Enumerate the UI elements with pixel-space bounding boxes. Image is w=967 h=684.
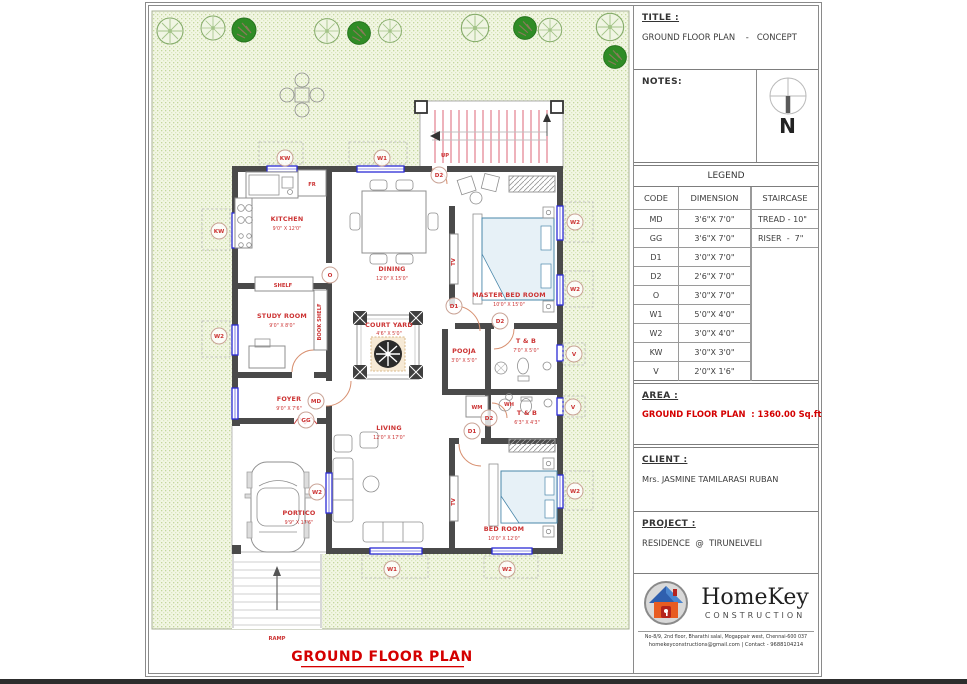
- title-value: GROUND FLOOR PLAN - CONCEPT: [642, 32, 810, 42]
- marker-d2: D2: [496, 319, 505, 325]
- legend-cell: MD: [634, 210, 679, 229]
- logo-name: HomeKey: [701, 586, 809, 609]
- plan-caption: GROUND FLOOR PLAN: [291, 649, 472, 665]
- room-dim: 9'0" X 8'0": [269, 323, 295, 329]
- notes-section: NOTES: N: [634, 70, 818, 163]
- legend-cell: 3'0"X 7'0": [679, 248, 751, 267]
- client-label: CLIENT :: [642, 455, 810, 465]
- stair-up-label: UP: [441, 153, 449, 159]
- marker-w2: W2: [570, 489, 580, 495]
- logo-tagline: CONSTRUCTION: [705, 611, 805, 620]
- legend-cell: [751, 248, 818, 267]
- legend-cell: [751, 267, 818, 286]
- client-section: CLIENT : Mrs. JASMINE TAMILARASI RUBAN: [634, 447, 818, 512]
- marker-d1: D1: [468, 429, 477, 435]
- marker-o: O: [328, 273, 333, 279]
- marker-w2: W2: [312, 490, 322, 496]
- logo-address: No-8/9, 2nd floor, Bharathi salai, Mogap…: [638, 631, 814, 650]
- legend-cell: [751, 305, 818, 324]
- legend-col-dimension: DIMENSION: [679, 187, 751, 210]
- drawing-sheet-page: KITCHEN 9'0" X 12'0" DINING 12'0" X 15'0…: [0, 0, 967, 684]
- legend-cell: W2: [634, 324, 679, 343]
- north-label: N: [779, 116, 796, 136]
- marker-w1: W1: [387, 567, 397, 573]
- marker-v: V: [571, 405, 576, 411]
- room-dim: 3'0" X 5'0": [451, 358, 477, 364]
- sheet-border: KITCHEN 9'0" X 12'0" DINING 12'0" X 15'0…: [145, 2, 822, 677]
- marker-w2: W2: [502, 567, 512, 573]
- ramp-label: RAMP: [269, 636, 286, 642]
- address-line-2: homekeyconstructions@gmail.com | Contact…: [638, 642, 814, 648]
- room-dim: 9'0" X 7'6": [276, 406, 302, 412]
- room-dim: 7'0" X 5'0": [513, 348, 539, 354]
- legend-cell: GG: [634, 229, 679, 248]
- marker-w2: W2: [214, 334, 224, 340]
- client-value: Mrs. JASMINE TAMILARASI RUBAN: [642, 474, 810, 484]
- window-edge-bar: [0, 679, 967, 684]
- area-value: GROUND FLOOR PLAN : 1360.00 Sq.ft: [642, 409, 810, 419]
- room-label: COURT YARD: [365, 321, 413, 329]
- legend-cell: O: [634, 286, 679, 305]
- room-label: KITCHEN: [271, 215, 304, 223]
- legend-cell: W1: [634, 305, 679, 324]
- marker-d2: D2: [435, 173, 444, 179]
- caption-underline: [301, 666, 464, 667]
- legend-cell: 3'0"X 4'0": [679, 324, 751, 343]
- room-label: PORTICO: [282, 509, 315, 517]
- shelf-label: SHELF: [274, 283, 293, 289]
- legend-col-code: CODE: [634, 187, 679, 210]
- title-label: TITLE :: [642, 13, 810, 23]
- car: [245, 462, 311, 552]
- title-block-panel: TITLE : GROUND FLOOR PLAN - CONCEPT NOTE…: [633, 6, 818, 673]
- legend-cell: 3'6"X 7'0": [679, 210, 751, 229]
- legend-cell: D1: [634, 248, 679, 267]
- room-label: T & B: [517, 409, 537, 417]
- legend-cell: V: [634, 362, 679, 381]
- water-heater-label: WH: [504, 402, 514, 408]
- fridge-label: FR: [308, 182, 316, 188]
- room-dim: 12'0" X 17'0": [373, 435, 405, 441]
- room-label: DINING: [378, 265, 405, 273]
- marker-kw: KW: [214, 229, 225, 235]
- marker-gg: GG: [301, 418, 311, 424]
- marker-w2: W2: [570, 287, 580, 293]
- marker-kw: KW: [280, 156, 291, 162]
- marker-md: MD: [311, 399, 322, 405]
- legend-cell: [751, 324, 818, 343]
- sheet-inner-border: KITCHEN 9'0" X 12'0" DINING 12'0" X 15'0…: [148, 5, 819, 674]
- legend-cell: 2'0"X 1'6": [679, 362, 751, 381]
- legend-cell: TREAD - 10": [751, 210, 818, 229]
- legend-cell: 5'0"X 4'0": [679, 305, 751, 324]
- room-dim: 10'0" X 12'0": [488, 536, 520, 542]
- room-label: MASTER BED ROOM: [472, 291, 546, 299]
- legend-cell: RISER - 7": [751, 229, 818, 248]
- marker-w1: W1: [377, 156, 387, 162]
- room-label: FOYER: [277, 395, 301, 403]
- legend-cell: KW: [634, 343, 679, 362]
- project-section: PROJECT : RESIDENCE @ TIRUNELVELI: [634, 512, 818, 574]
- room-dim: 4'6" X 5'0": [376, 331, 402, 337]
- legend-cell: [751, 343, 818, 362]
- legend-cell: [751, 286, 818, 305]
- book-shelf-label: BOOK SHELF: [317, 303, 323, 341]
- legend-col-staircase: STAIRCASE: [751, 187, 818, 210]
- tv-label: TV: [451, 258, 457, 266]
- area-section: AREA : GROUND FLOOR PLAN : 1360.00 Sq.ft: [634, 383, 818, 445]
- north-indicator: N: [757, 70, 818, 162]
- room-dim: 10'0" X 15'0": [493, 302, 525, 308]
- dining-table: [350, 180, 438, 264]
- project-label: PROJECT :: [642, 519, 810, 529]
- marker-v: V: [572, 352, 577, 358]
- notes-label: NOTES:: [642, 77, 748, 87]
- room-label: LIVING: [376, 424, 402, 432]
- marker-d1: D1: [450, 304, 459, 310]
- project-value: RESIDENCE @ TIRUNELVELI: [642, 538, 810, 548]
- notes-area: NOTES:: [634, 70, 757, 162]
- homekey-logo-icon: [642, 579, 690, 627]
- marker-d2: D2: [485, 416, 494, 422]
- title-section: TITLE : GROUND FLOOR PLAN - CONCEPT: [634, 6, 818, 70]
- legend-cell: D2: [634, 267, 679, 286]
- floor-plan-svg: KITCHEN 9'0" X 12'0" DINING 12'0" X 15'0…: [149, 6, 633, 673]
- area-label: AREA :: [642, 391, 810, 401]
- room-label: T & B: [516, 337, 536, 345]
- legend-cell: 3'6"X 7'0": [679, 229, 751, 248]
- legend-cell: 3'0"X 7'0": [679, 286, 751, 305]
- marker-w2: W2: [570, 220, 580, 226]
- legend-cell: 2'6"X 7'0": [679, 267, 751, 286]
- tv-label: TV: [451, 498, 457, 506]
- room-label: BED ROOM: [484, 525, 525, 533]
- drawing-area: KITCHEN 9'0" X 12'0" DINING 12'0" X 15'0…: [149, 6, 633, 673]
- legend-cell: 3'0"X 3'0": [679, 343, 751, 362]
- washing-machine-label: WM: [472, 405, 483, 411]
- address-line-1: No-8/9, 2nd floor, Bharathi salai, Mogap…: [638, 635, 814, 640]
- room-label: STUDY ROOM: [257, 312, 307, 320]
- room-dim: 9'0" X 12'0": [273, 226, 302, 232]
- room-dim: 12'0" X 15'0": [376, 276, 408, 282]
- legend-cell: [751, 362, 818, 381]
- legend-header: LEGEND: [634, 165, 818, 187]
- legend-table: CODE DIMENSION STAIRCASE MD 3'6"X 7'0" T…: [634, 187, 818, 381]
- logo-section: HomeKey CONSTRUCTION No-8/9, 2nd floor, …: [634, 574, 818, 673]
- room-label: POOJA: [452, 347, 476, 355]
- room-dim: 9'9" X 17'6": [285, 520, 314, 526]
- room-dim: 6'3" X 4'3": [514, 420, 540, 426]
